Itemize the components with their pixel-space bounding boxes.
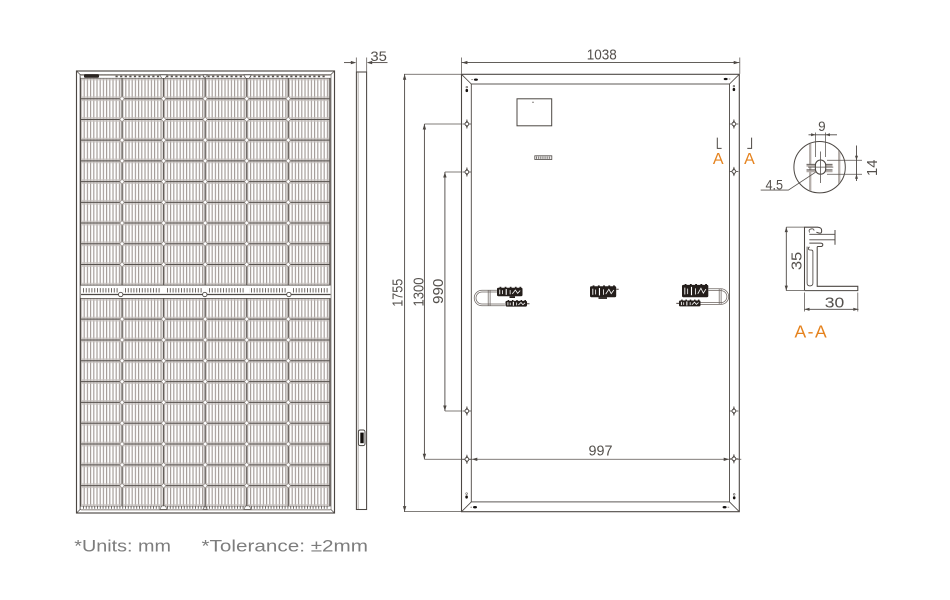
svg-text:A: A [713,151,724,168]
svg-text:A: A [744,151,755,168]
svg-text:30: 30 [825,295,845,312]
svg-text:9: 9 [818,119,826,134]
svg-text:14: 14 [865,159,881,176]
svg-text:4.5: 4.5 [766,177,784,193]
svg-text:997: 997 [589,443,613,459]
svg-text:1300: 1300 [412,278,428,307]
svg-text:A-A: A-A [795,321,829,341]
svg-text:*Units: mm: *Units: mm [74,537,171,555]
svg-text:35: 35 [370,48,387,64]
svg-text:35: 35 [789,252,805,270]
svg-text:*Tolerance: ±2mm: *Tolerance: ±2mm [202,537,369,555]
svg-text:990: 990 [431,279,447,304]
svg-text:1755: 1755 [390,279,406,307]
svg-text:1038: 1038 [587,48,617,64]
